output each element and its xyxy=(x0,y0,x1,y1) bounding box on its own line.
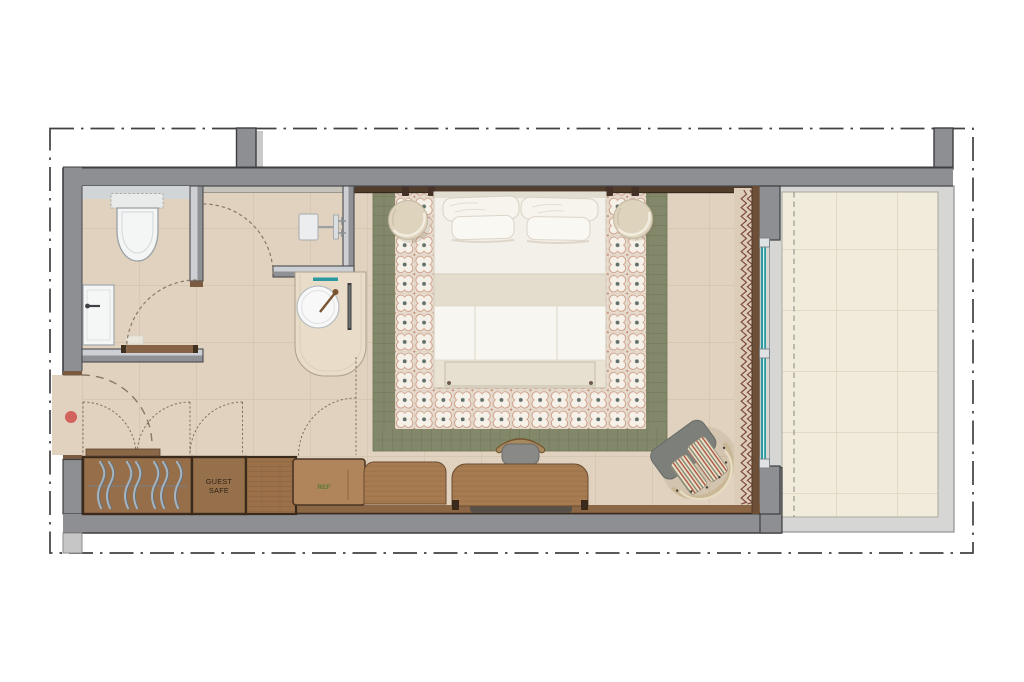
svg-text:REF: REF xyxy=(317,484,331,491)
svg-text:GUEST: GUEST xyxy=(206,477,233,486)
svg-text:SAFE: SAFE xyxy=(209,486,229,495)
